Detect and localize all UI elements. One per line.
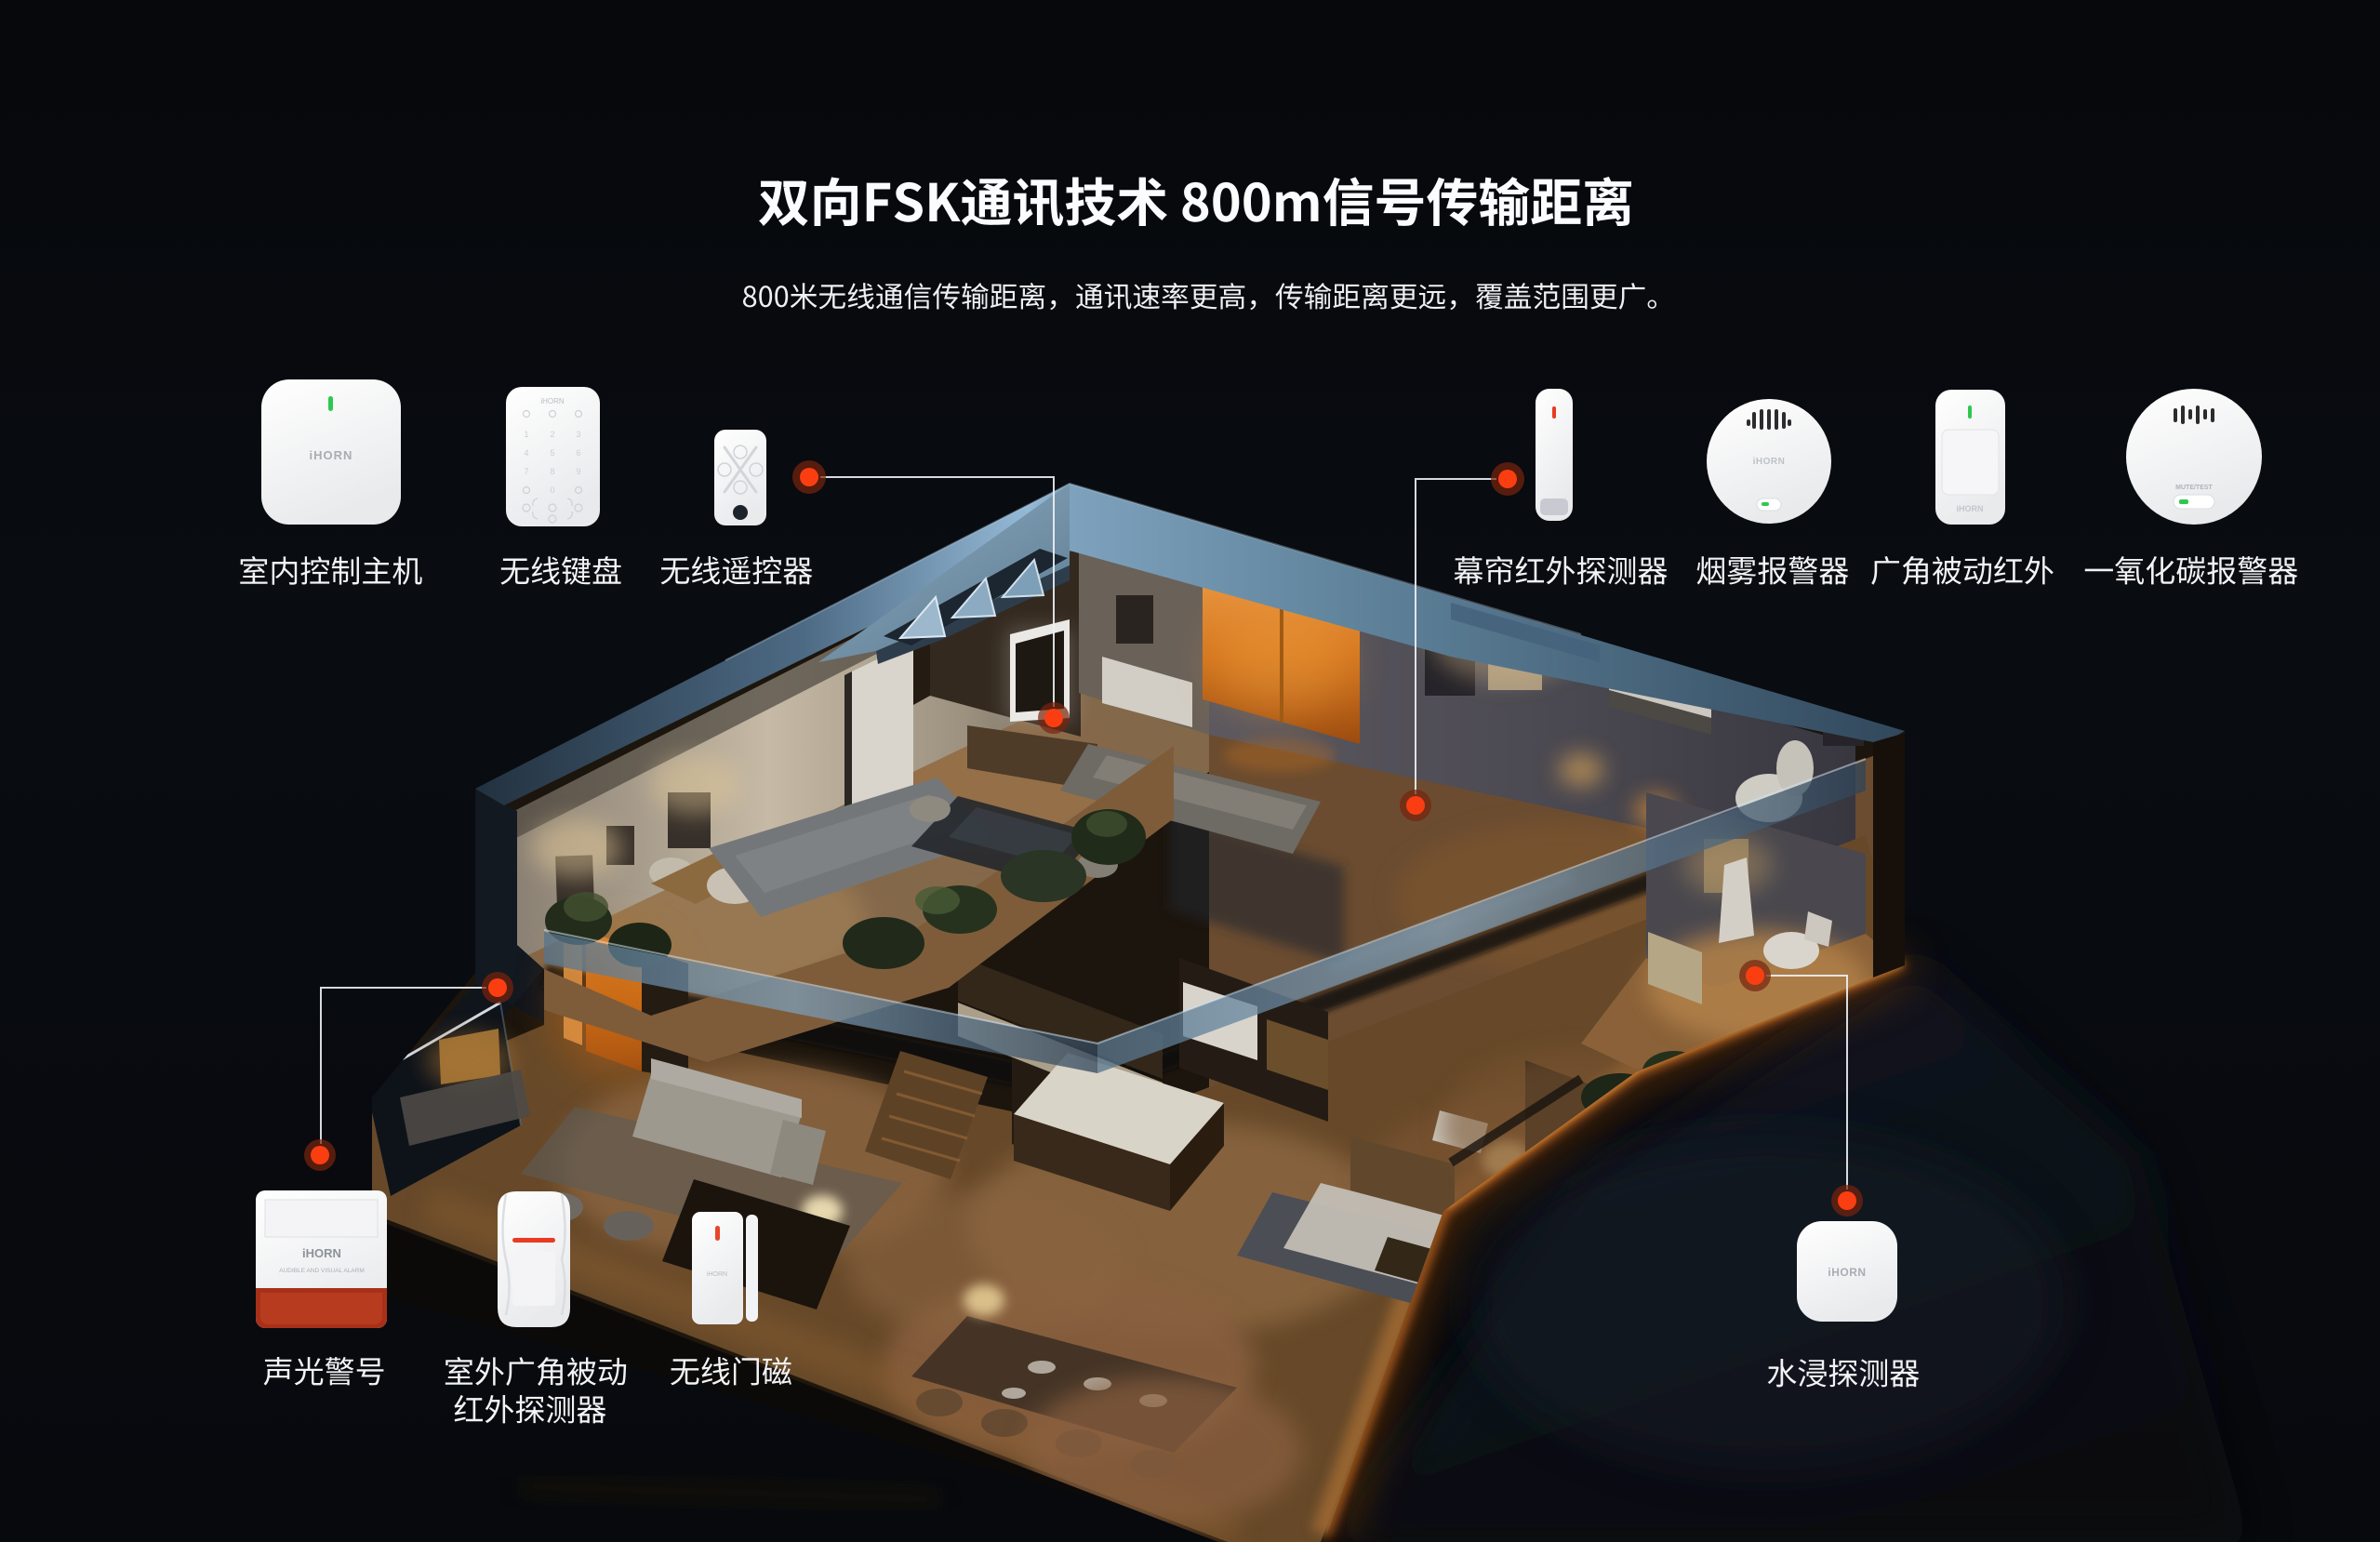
- svg-text:iHORN: iHORN: [707, 1271, 727, 1278]
- svg-text:7: 7: [524, 467, 528, 476]
- svg-text:6: 6: [576, 448, 580, 458]
- svg-text:MUTE/TEST: MUTE/TEST: [2175, 485, 2213, 491]
- svg-text:9: 9: [576, 467, 580, 476]
- svg-text:0: 0: [550, 485, 554, 495]
- svg-text:AUDIBLE AND VISUAL ALARM: AUDIBLE AND VISUAL ALARM: [279, 1268, 365, 1274]
- svg-text:iHORN: iHORN: [1957, 504, 1984, 513]
- svg-text:5: 5: [550, 448, 554, 458]
- svg-text:1: 1: [524, 430, 528, 439]
- svg-text:iHORN: iHORN: [310, 448, 353, 462]
- svg-text:iHORN: iHORN: [1753, 457, 1786, 467]
- svg-text:3: 3: [576, 430, 580, 439]
- svg-text:8: 8: [550, 467, 554, 476]
- svg-text:2: 2: [550, 430, 554, 439]
- svg-text:iHORN: iHORN: [1828, 1266, 1866, 1279]
- svg-text:iHORN: iHORN: [540, 397, 565, 405]
- svg-text:iHORN: iHORN: [302, 1246, 341, 1260]
- svg-text:4: 4: [524, 448, 528, 458]
